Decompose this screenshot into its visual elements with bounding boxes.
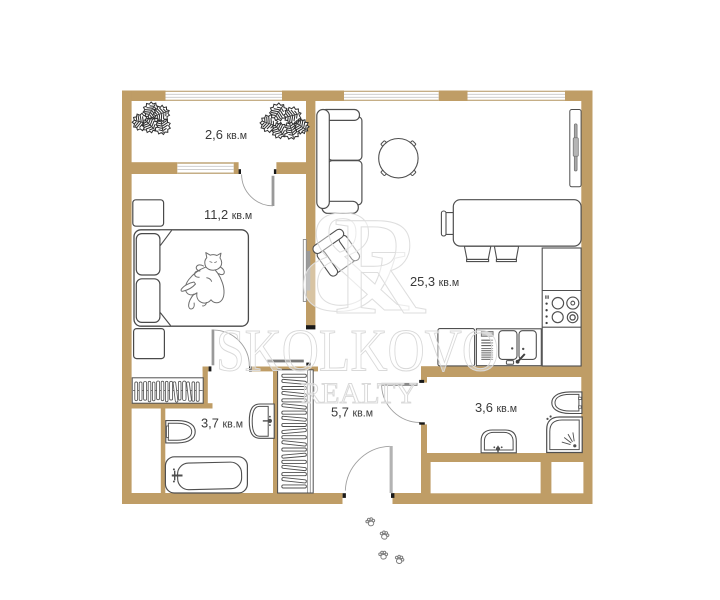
svg-text:SKOLKOVO: SKOLKOVO [216, 318, 499, 384]
svg-text:REALTY: REALTY [301, 377, 417, 410]
svg-text:3,6 кв.м: 3,6 кв.м [475, 400, 517, 415]
svg-text:3,7 кв.м: 3,7 кв.м [201, 416, 243, 431]
svg-text:2,6 кв.м: 2,6 кв.м [205, 127, 247, 142]
svg-text:11,2 кв.м: 11,2 кв.м [204, 207, 252, 222]
